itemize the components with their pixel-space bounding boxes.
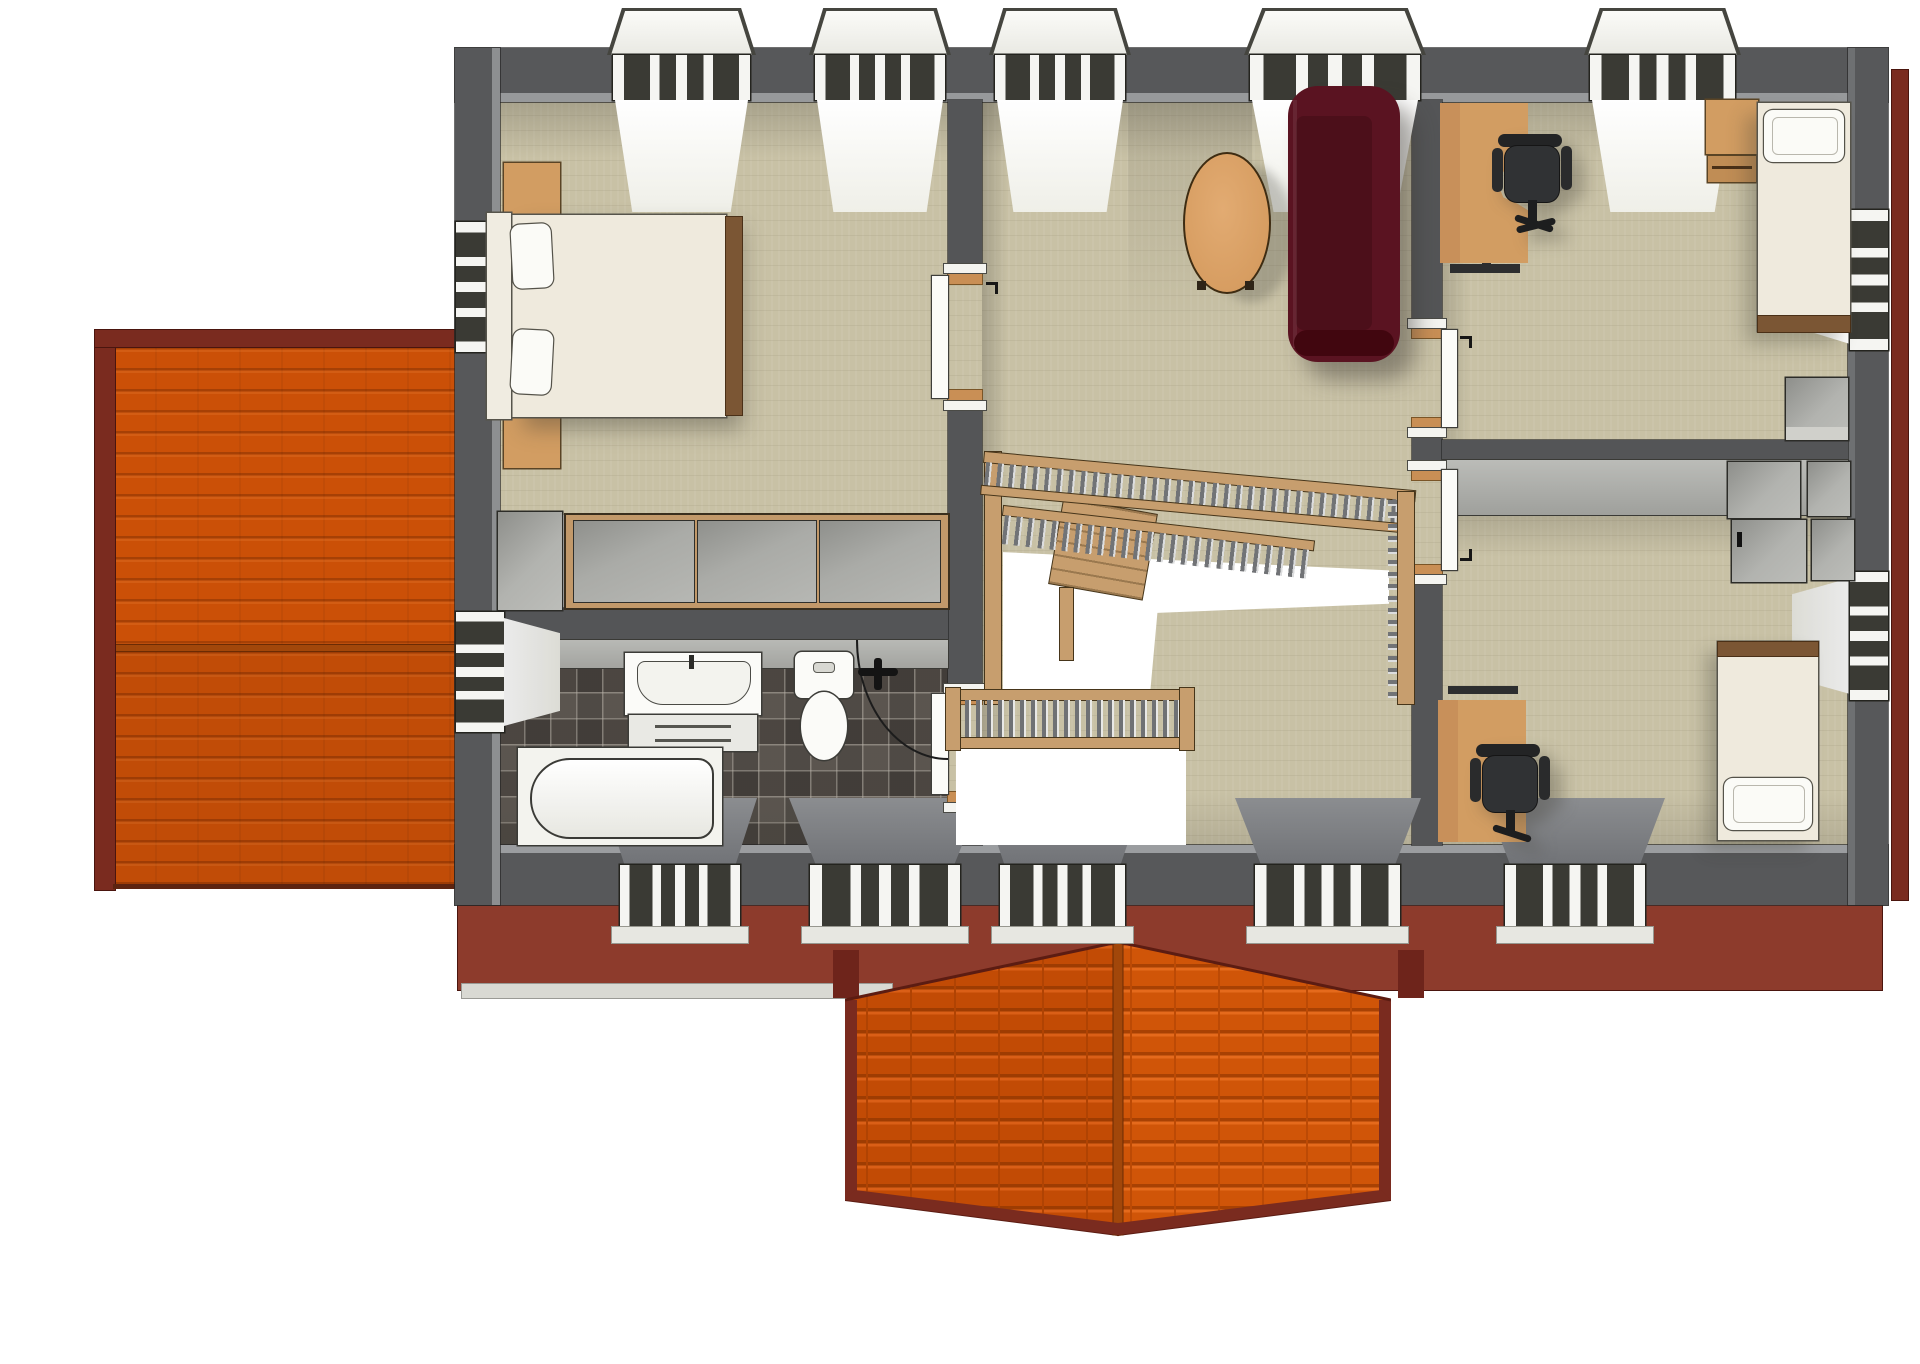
wall2-upper [1412,100,1442,325]
left-roof-trim-left [95,330,115,890]
window-sill [1497,927,1653,943]
wardrobe-panel-2 [698,521,816,602]
dormer-sill [813,11,947,55]
left-roof-ridge [113,645,465,651]
door-handle-icon [1469,549,1472,561]
left-roof-eave-line [113,884,465,889]
window-bottom-study [1505,865,1645,929]
dresser-study-upper [1786,378,1848,440]
dormer-sill [611,11,752,55]
door-jamb [1408,319,1446,328]
bed-pillow [1764,110,1844,162]
window-bottom-living-1 [1000,865,1125,929]
bedroom-side-cabinet [498,512,562,610]
door-threshold [1412,418,1442,428]
fascia-corner-post-right [1398,950,1424,998]
door-jamb [1408,461,1446,470]
dresser-front [1786,427,1848,440]
sofa [1288,86,1400,362]
wardrobe-panel-3 [820,521,940,602]
stairwell-void-lower [956,746,1186,845]
bed-foot-board [726,217,742,415]
right-exterior-wall [1848,48,1888,905]
bathroom-north-wall [498,608,948,640]
desk-side-face [1438,700,1458,842]
study-lower-door-leaf [1442,470,1457,570]
handrail [952,690,1188,700]
left-roof-lower-slope [113,651,465,888]
door-handle-icon [995,282,998,294]
nightstand-study-upper [1706,100,1758,154]
window-reveal-left-bathroom [504,618,560,726]
door-threshold [948,390,982,401]
dormer-sill [993,11,1127,55]
left-wall-inner-face [492,48,500,905]
window-top-study [1590,55,1735,100]
window-reveal-top-bedroom-2 [817,100,943,212]
gable-right-slope [1118,942,1391,1235]
end-post [1180,688,1194,750]
sofa-front-edge [1293,100,1297,348]
window-sill [612,927,748,943]
appliance-cabinet [1812,520,1854,580]
window-top-living-1 [995,55,1125,100]
chair-seat [1505,146,1559,202]
toilet-bowl [801,692,847,760]
stair-railing-bottom [952,690,1188,748]
window-top-bedroom-1 [613,55,750,100]
nightstand-shelf [1708,156,1756,182]
nightstand-bottom [504,412,560,468]
balusters [954,700,1186,738]
handrail [952,738,1188,748]
window-sill [1247,927,1408,943]
door-jamb [944,401,986,410]
right-rooms-divider-wall [1442,440,1848,460]
desk-side-face [1440,103,1460,263]
bedroom-door-leaf [932,276,948,398]
door-threshold [1412,565,1442,575]
window-left-bathroom [456,612,504,732]
sofa-base-shadow [1294,330,1394,356]
front-gable-roof [845,942,1391,1238]
window-reveal-top-living-1 [997,100,1123,212]
bed-foot-board [1758,316,1850,332]
left-roof-trim-top [95,330,465,347]
door-threshold [1412,328,1442,338]
gable-left-slope [845,942,1118,1235]
bed-pillow [510,329,553,395]
bed-pillow [1724,778,1812,830]
left-roof-upper-slope [113,347,465,648]
drawer-line [655,725,731,728]
table-leg [1245,281,1254,290]
chair-armrest [1561,146,1572,190]
desk-lower-legs [1448,686,1518,694]
appliance-cabinet [1728,462,1800,518]
office-chair-lower [1470,744,1550,840]
wall1-middle [948,403,982,690]
right-roof-fascia-strip [1892,70,1908,900]
window-sill [802,927,968,943]
dormer-sill [1588,11,1737,55]
vanity-counter [625,653,761,715]
study-upper-door-leaf [1442,330,1457,427]
vanity-drawers [629,715,757,751]
drawer-line [655,739,731,742]
door-opening-study-upper [1412,325,1442,430]
end-post [946,688,960,750]
shelf-line [1712,166,1752,169]
window-reveal-top-bedroom-1 [615,100,748,212]
window-bottom-landing [810,865,960,929]
stair-newel-post [1060,588,1073,660]
bed-pillow [510,223,553,289]
chair-seat [1483,756,1537,812]
flush-button [813,662,835,673]
sofa-seat [1296,116,1372,330]
shower-mixer-icon [874,658,882,690]
vanity-basin [637,661,751,705]
chair-armrest [1492,148,1503,192]
washer-hinge [1737,532,1742,547]
wardrobe-panel-1 [574,521,694,602]
window-top-bedroom-2 [815,55,945,100]
chair-armrest [1470,758,1481,802]
door-handle-icon [1469,336,1472,348]
door-jamb [1408,428,1446,437]
pillow-inner-line [1733,785,1805,823]
window-sill [992,927,1133,943]
window-right-study-upper [1850,210,1888,350]
wall1-upper [948,100,982,270]
office-chair-upper [1492,134,1572,230]
door-opening-bedroom [948,270,982,403]
dormer-sill [1248,11,1422,55]
pillow-inner-line [1772,117,1838,155]
window-bottom-bathroom [620,865,740,929]
floor-plan-canvas [0,0,1920,1364]
door-threshold [948,273,982,284]
vanity-faucet-icon [689,655,694,669]
bed-head-board [1718,642,1818,656]
left-exterior-wall [455,48,500,905]
door-jamb [944,264,986,273]
stair-right-post [1398,492,1414,704]
bed-headboard [487,213,511,419]
gable-ridge [1113,942,1123,1235]
gable-trim-left [845,1000,857,1200]
nightstand-top [504,163,560,215]
chair-armrest [1539,756,1550,800]
oval-coffee-table [1183,152,1271,294]
table-leg [1197,281,1206,290]
door-threshold [1412,470,1442,480]
bottom-soffit-strip [462,984,892,998]
washing-machine [1732,520,1806,582]
door-opening-study-lower [1412,467,1442,577]
window-bay-hood-icon [1235,798,1421,865]
window-bottom-living-2 [1255,865,1400,929]
window-right-study-lower [1850,572,1888,700]
gable-trim-right [1379,1000,1391,1200]
bathtub-basin [530,758,714,839]
appliance-cabinet [1808,462,1850,516]
